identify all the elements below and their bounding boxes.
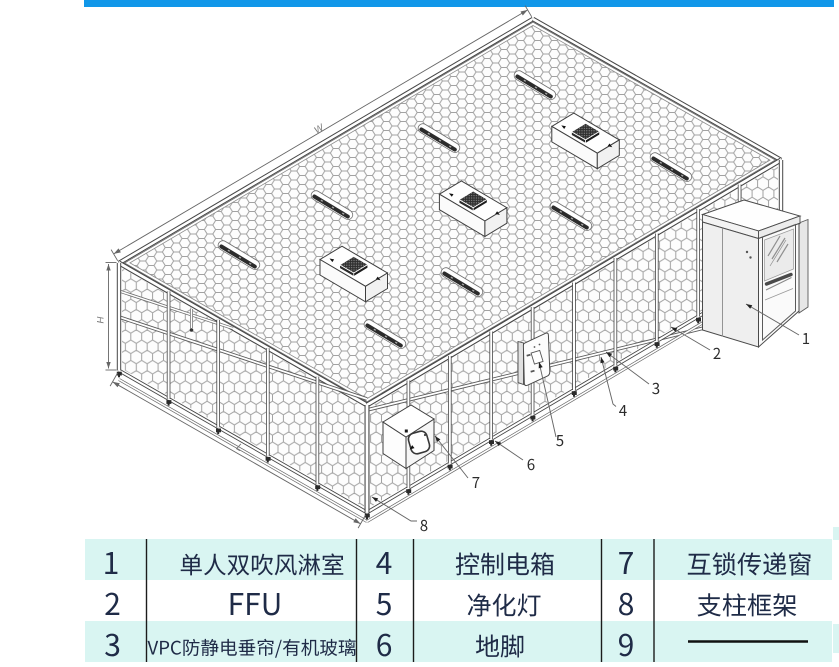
svg-text:H: H bbox=[96, 316, 107, 323]
